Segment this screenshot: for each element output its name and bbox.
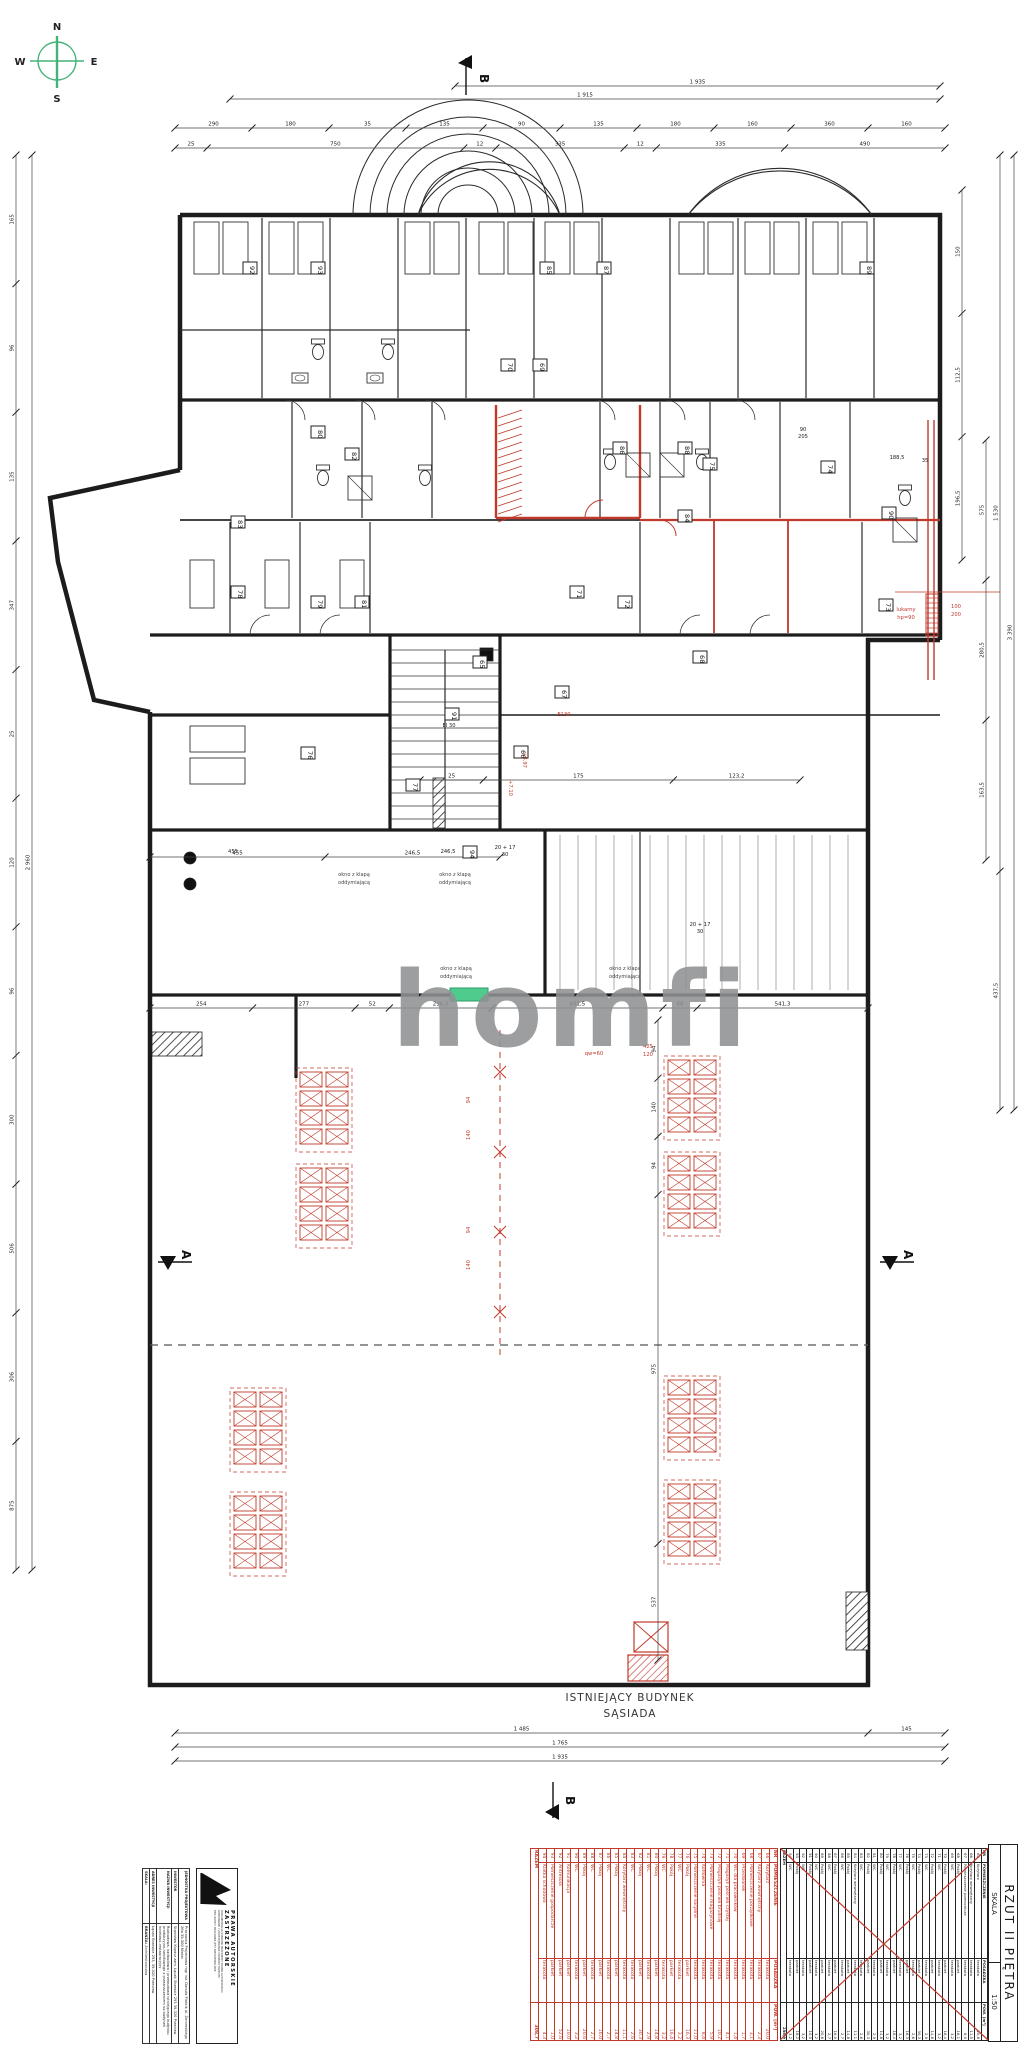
plan-text: 1 765 — [552, 1741, 568, 1747]
toilet-icon — [318, 471, 329, 486]
plan-text: 145 — [901, 1727, 912, 1733]
neighbor-line2: SĄSIADA — [500, 1708, 760, 1720]
sink-icon — [370, 375, 380, 381]
table-row: 88WCterakota2,7 — [587, 1849, 595, 2041]
table-row: 79WCterakota3,2 — [658, 1849, 666, 2041]
red-crossed-box — [326, 1225, 348, 1240]
red-crossed-box — [668, 1213, 690, 1228]
bed-symbol — [679, 222, 704, 274]
plan-text: 35 — [364, 122, 371, 128]
plan-text: 81 — [360, 600, 368, 608]
plan-text: 335 — [715, 142, 726, 148]
plan-text: lukarny — [896, 607, 915, 613]
plan-text: 196,5 — [956, 490, 962, 506]
plan-text: oddymiającą — [439, 880, 471, 886]
plan-text: 87 — [602, 266, 610, 274]
plan-text: 506 — [10, 1243, 16, 1254]
table-row: 85Pokójparkiet14,8 — [610, 1849, 618, 2041]
red-crossed-box — [260, 1392, 282, 1407]
table-row: 70Pokójparkiet16,4 — [942, 1849, 948, 2041]
plan-text: 120 — [10, 857, 16, 868]
plan-text: 300 — [10, 1114, 16, 1125]
table-row: 68Pokójparkiet16,1 — [955, 1849, 961, 2041]
branza-value: Architektoniczna — [144, 1945, 148, 1975]
svg-text:A: A — [179, 1250, 193, 1260]
studio-logo — [199, 1871, 235, 1907]
plan-text: 83 — [236, 520, 244, 528]
toilet-icon — [900, 491, 911, 506]
plan-text: 30 — [502, 852, 509, 858]
plan-text: 94 — [652, 1161, 658, 1168]
plan-text: 165 — [10, 214, 16, 225]
red-crossed-box — [694, 1194, 716, 1209]
plan-text: 160 — [901, 122, 912, 128]
red-hatch — [498, 474, 522, 482]
title-block-row: ADRES INWESTYCJIŁączki Brzeskie 293, 39-… — [150, 1869, 157, 2044]
bed-symbol — [508, 222, 533, 274]
toilet-tank — [382, 339, 395, 344]
toilet-tank — [899, 485, 912, 490]
plan-text: 140 — [466, 1260, 472, 1270]
plan-text: 52 — [369, 1002, 376, 1008]
red-hatch — [498, 482, 522, 490]
table-row: 92WCterakota3,2 — [800, 1849, 806, 2041]
plan-text: 76 — [306, 751, 314, 759]
red-crossed-box — [668, 1194, 690, 1209]
red-crossed-box — [668, 1503, 690, 1518]
fan-arc — [387, 134, 549, 215]
bed-symbol — [194, 222, 219, 274]
plan-text: 140 — [466, 1130, 472, 1140]
door-swing — [320, 615, 340, 635]
red-crossed-box — [234, 1411, 256, 1426]
plan-text: 188,5 — [890, 455, 905, 461]
homfi-logo: homfi — [392, 958, 752, 1062]
plan-text: 123,2 — [729, 774, 745, 780]
drawing-title-block: RZUT II PIĘTRA SKALA 1:50 — [988, 1844, 1018, 2042]
table-row: 72Magazyn pościeli brudnejterakota10,2 — [714, 1849, 722, 2041]
red-crossed-box — [694, 1503, 716, 1518]
plan-text: 135 — [10, 471, 16, 482]
plan-text: 73 — [884, 603, 892, 611]
copyright-strip: PRAWA AUTORSKIE ZASTRZEŻONE DOKUMENTACJA… — [196, 1868, 238, 2044]
plan-text: 88 — [683, 446, 691, 454]
red-crossed-box — [694, 1380, 716, 1395]
red-crossed-box — [694, 1484, 716, 1499]
bed-symbol — [574, 222, 599, 274]
door-swing — [285, 400, 305, 420]
red-crossed-box — [668, 1484, 690, 1499]
fan-arc — [370, 117, 566, 215]
table-row: 68Pomieszczenie porządkoweterakota3,1 — [746, 1849, 754, 2041]
svg-text:B: B — [477, 74, 491, 83]
door-swing — [735, 400, 755, 420]
table-header-row: NRPOMIESZCZENIEPOSADZKAPOW. [m²] — [770, 1849, 778, 2041]
red-hatch — [498, 442, 522, 450]
door-swing — [665, 400, 685, 420]
plan-text: 77 — [411, 783, 419, 791]
title-block-row: INWESTORStanisław Kopacz zam. Łączki Brz… — [172, 1869, 179, 2044]
table-total-row: RAZEM258,9 — [781, 1849, 787, 2041]
table-row: 80Pokójparkiet14,8 — [878, 1849, 884, 2041]
red-crossed-box — [694, 1156, 716, 1171]
table-row: 83WCterakota2,6 — [626, 1849, 634, 2041]
plan-text: 750 — [330, 142, 341, 148]
shower-icon — [893, 518, 917, 542]
red-crossed-box — [234, 1449, 256, 1464]
door-swing — [250, 615, 270, 635]
door-swing — [595, 400, 615, 420]
plan-text: 93 — [316, 266, 324, 274]
red-crossed-box — [694, 1522, 716, 1537]
bed-symbol — [265, 560, 289, 608]
red-hatch — [498, 498, 522, 506]
table-row: 74Pokójparkiet30,3 — [916, 1849, 922, 2041]
table-row: 74Kotłowniaterakota8,4 — [698, 1849, 706, 2041]
plan-text: 1 915 — [577, 93, 593, 99]
plan-text: 180 — [670, 122, 681, 128]
plan-text: 90 — [887, 511, 895, 519]
table-row: 93Pomieszczenie gospodarczeparkiet1,0 — [547, 1849, 555, 2041]
toilet-icon — [313, 345, 324, 360]
plan-text: 75 — [708, 462, 716, 470]
plan-text: 160 — [747, 122, 758, 128]
copyright-title: PRAWA AUTORSKIE ZASTRZEŻONE — [223, 1910, 235, 2041]
section-marker-b-bottom: B — [545, 1782, 577, 1820]
plan-text: 1 485 — [514, 1727, 530, 1733]
plan-text: 150 — [956, 246, 962, 257]
red-hatch — [498, 458, 522, 466]
room-schedule-old: NRPOMIESZCZENIEPOSADZKAPOW. [m²]65Koryta… — [780, 1848, 988, 2040]
plan-text: 78 — [236, 590, 244, 598]
toilet-tank — [696, 449, 709, 454]
table-row: 67Pomieszczenie pomocniczeterakota6,0 — [962, 1849, 968, 2041]
table-row: 66Korytarz wewnętrznyterakota11,5 — [968, 1849, 974, 2041]
plan-text: 875 — [10, 1500, 16, 1511]
red-crossed-box — [260, 1411, 282, 1426]
red-crossed-box — [260, 1449, 282, 1464]
red-crossed-box — [260, 1430, 282, 1445]
red-crossed-box — [234, 1534, 256, 1549]
bed-symbol — [813, 222, 838, 274]
table-row: 93Pokójparkiet18,2 — [793, 1849, 799, 2041]
plan-text: 85 — [545, 266, 553, 274]
table-row: 76Pokójparkiet16,3 — [682, 1849, 690, 2041]
title-block-row: JEDNOSTKA PROJEKTOWAPracownia Projektowa… — [179, 1869, 190, 2044]
room-schedule-old-table: NRPOMIESZCZENIEPOSADZKAPOW. [m²]65Koryta… — [780, 1848, 988, 2041]
table-row: 94Klatka schodowaterakota4,3 — [539, 1849, 547, 2041]
red-crossed-box — [234, 1392, 256, 1407]
table-row: 69Przedsionekterakota1,7 — [738, 1849, 746, 2041]
plan-text: 65 — [478, 660, 486, 668]
toilet-icon — [383, 345, 394, 360]
door-swing — [750, 615, 770, 635]
red-crossed-box — [326, 1187, 348, 1202]
room-schedule-new-table: NRPOMIESZCZENIEPOSADZKAPOW. [m²]66Koryta… — [530, 1848, 778, 2041]
red-crossed-box — [694, 1399, 716, 1414]
plan-text: 277 — [299, 1002, 310, 1008]
plan-text: 74 — [826, 465, 834, 473]
red-crossed-box — [300, 1129, 322, 1144]
table-row: 82Pokójparkiet30,3 — [865, 1849, 871, 2041]
bed-symbol — [190, 560, 214, 608]
red-crossed-box — [694, 1418, 716, 1433]
plan-text: 1 935 — [552, 1755, 568, 1761]
plan-text: 25 — [188, 142, 195, 148]
red-crossed-box — [260, 1553, 282, 1568]
red-hatch — [498, 426, 522, 434]
title-block: PRAWA AUTORSKIE ZASTRZEŻONE DOKUMENTACJA… — [80, 1868, 238, 2044]
red-crossed-box — [260, 1515, 282, 1530]
neighbor-line1: ISTNIEJĄCY BUDYNEK — [500, 1692, 760, 1704]
plan-text: 86 — [618, 446, 626, 454]
red-crossed-box — [234, 1430, 256, 1445]
red-crossed-box — [300, 1072, 322, 1087]
plan-text: 537 — [652, 1596, 658, 1607]
table-row: 79WCterakota3,2 — [884, 1849, 890, 2041]
drawing-title: RZUT II PIĘTRA — [1000, 1845, 1017, 2041]
plan-text: 94 — [466, 1096, 472, 1103]
plan-text: 35 — [922, 458, 929, 464]
table-row: 86WCterakota2,7 — [603, 1849, 611, 2041]
red-x-mark — [494, 1226, 506, 1238]
door-swing — [355, 400, 375, 420]
table-row: 75WCterakota2,6 — [910, 1849, 916, 2041]
plan-text: 135 — [593, 122, 604, 128]
red-crossed-box — [300, 1168, 322, 1183]
table-row: 71Magazyn pościeli czystejterakota4,1 — [722, 1849, 730, 2041]
toilet-tank — [419, 465, 432, 470]
table-row: 78Pokójparkiet16,4 — [890, 1849, 896, 2041]
table-row: 78Pokójparkiet16,4 — [666, 1849, 674, 2041]
red-crossed-box — [300, 1225, 322, 1240]
plan-text: okno z klapą — [439, 872, 471, 878]
plan-text: 30 — [697, 929, 704, 935]
generated-fixtures — [190, 222, 917, 990]
plan-text: 541,3 — [775, 1002, 791, 1008]
red-crossed-box — [300, 1091, 322, 1106]
plan-text: 79 — [316, 600, 324, 608]
red-crossed-box — [668, 1437, 690, 1452]
piers — [152, 648, 868, 1650]
red-crossed-box — [326, 1091, 348, 1106]
plan-text: 975 — [652, 1363, 658, 1374]
plan-text: 575 — [980, 504, 986, 515]
plan-text: 72 — [623, 600, 631, 608]
red-crossed-box — [326, 1072, 348, 1087]
red-crossed-box — [694, 1541, 716, 1556]
red-crossed-box — [668, 1079, 690, 1094]
toilet-icon — [605, 455, 616, 470]
title-block-row: SKALA: BRANŻA: Architektoniczna — [143, 1869, 150, 2044]
table-row: 90WCterakota3,2 — [813, 1849, 819, 2041]
table-row: 67Korytarz wewnętrznyterakota2,3 — [754, 1849, 762, 2041]
table-row: 85Pokójparkiet14,8 — [845, 1849, 851, 2041]
plan-text: 455 — [228, 849, 238, 855]
plan-text: 70 — [506, 363, 514, 371]
red-hatch — [498, 490, 522, 498]
table-row: 81WCterakota2,9 — [871, 1849, 877, 2041]
door-swing — [680, 615, 700, 635]
sink-icon — [292, 373, 308, 383]
table-header-row: NRPOMIESZCZENIEPOSADZKAPOW. [m²] — [981, 1849, 987, 2041]
red-crossed-box — [668, 1522, 690, 1537]
plan-text: 90 — [800, 427, 807, 433]
red-crossed-box — [694, 1117, 716, 1132]
red-hatch — [498, 450, 522, 458]
plan-text: 25 — [448, 774, 455, 780]
plan-text: 360 — [824, 122, 835, 128]
red-crossed-box — [326, 1206, 348, 1221]
red-crossed-box — [694, 1213, 716, 1228]
shower-icon — [660, 453, 684, 477]
section-marker-a-left: A — [158, 1250, 193, 1270]
red-hatch — [498, 410, 522, 418]
plan-text: 140 — [652, 1102, 658, 1113]
plan-text: 1 530 — [994, 505, 1000, 521]
red-crossed-box — [694, 1098, 716, 1113]
plan-text: 84 — [683, 514, 691, 522]
door-swing — [425, 400, 445, 420]
table-row: 86WCterakota2,7 — [839, 1849, 845, 2041]
table-row: 73WCterakota2,9 — [923, 1849, 929, 2041]
drawing-scale-label: SKALA — [989, 1845, 1000, 1963]
table-row: 88WCterakota2,7 — [826, 1849, 832, 2041]
project-info-table: JEDNOSTKA PROJEKTOWAPracownia Projektowa… — [142, 1868, 190, 2044]
red-crossed-box — [668, 1156, 690, 1171]
plan-text: 437,5 — [994, 982, 1000, 998]
red-crossed-box — [300, 1110, 322, 1125]
plan-text: 96 — [10, 344, 16, 351]
plan-text: 490 — [860, 142, 871, 148]
branza-label: BRANŻA: — [144, 1926, 148, 1944]
table-row: 87Pokójparkiet16,0 — [832, 1849, 838, 2041]
svg-text:B: B — [563, 1796, 577, 1805]
table-row: 82Pokójparkiet30,3 — [634, 1849, 642, 2041]
plan-text: 100 — [951, 604, 961, 610]
plan-text: 68 — [698, 655, 706, 663]
red-hatch — [498, 466, 522, 474]
plan-text: 135 — [439, 122, 450, 128]
table-row: 75Pomieszczenie socjalneterakota11,0 — [690, 1849, 698, 2041]
table-row: 77WCterakota3,2 — [674, 1849, 682, 2041]
table-row: 83WCterakota2,6 — [858, 1849, 864, 2041]
table-row: 94WCterakota3,2 — [787, 1849, 793, 2041]
section-marker-b-top: B — [458, 55, 491, 95]
red-hatch — [498, 418, 522, 426]
table-row: 90WCterakota3,2 — [571, 1849, 579, 2041]
table-row: 92Antresolaparkiet52,6 — [555, 1849, 563, 2041]
red-crossed-box — [300, 1206, 322, 1221]
room-schedule-new: NRPOMIESZCZENIEPOSADZKAPOW. [m²]66Koryta… — [530, 1848, 778, 2040]
plan-text: 163,5 — [980, 782, 986, 798]
toilet-icon — [420, 471, 431, 486]
plan-text: okno z klapą — [338, 872, 370, 878]
floor-plan-drawing: 1 9351 915290180351359013518016036016025… — [0, 0, 1024, 1840]
red-crossed-box — [668, 1418, 690, 1433]
plan-text: 347 — [10, 599, 16, 610]
red-crossed-box — [694, 1079, 716, 1094]
plan-text: 80 — [316, 430, 324, 438]
floor-plan-page: N S W E — [0, 0, 1024, 2048]
red-crossed-box — [668, 1541, 690, 1556]
plan-text: E130 — [557, 712, 570, 718]
plan-text: 335 — [555, 142, 566, 148]
bed-symbol — [434, 222, 459, 274]
table-row: 84Korytarz wewnętrznyterakota11,1 — [618, 1849, 626, 2041]
plan-text: 280,5 — [980, 642, 986, 658]
table-row: 72Pokójparkiet14,8 — [929, 1849, 935, 2041]
red-crossed-box — [234, 1553, 256, 1568]
fan-arc — [438, 185, 498, 215]
shower-icon — [348, 476, 372, 500]
plan-text: 205 — [798, 434, 808, 440]
table-row: 87Pokójparkiet16,0 — [595, 1849, 603, 2041]
plan-text: 200 — [951, 612, 961, 618]
plan-text: 92 — [248, 266, 256, 274]
red-crossed-box — [260, 1534, 282, 1549]
table-row: 73Pomieszczenie magazynoweterakota5,9 — [706, 1849, 714, 2041]
red-crossed-box — [668, 1098, 690, 1113]
plan-text: 25 — [10, 730, 16, 737]
plan-text: 180 — [285, 122, 296, 128]
arch-arc — [688, 168, 872, 215]
plan-text: EI 30 — [442, 723, 455, 729]
table-row: 76Pokójparkiet16,3 — [903, 1849, 909, 2041]
red-crossed-box — [694, 1437, 716, 1452]
plan-text: 20 + 17 — [690, 922, 711, 928]
plan-text: 246,5 — [441, 849, 456, 855]
plan-text: oddymiającą — [338, 880, 370, 886]
plan-text: 94 — [466, 1226, 472, 1233]
plan-text: 94 — [468, 850, 476, 858]
bed-symbol — [269, 222, 294, 274]
bed-symbol — [745, 222, 770, 274]
red-crossed-box — [234, 1515, 256, 1530]
table-row: 65Korytarzterakota20,8 — [975, 1849, 981, 2041]
plan-text: 290 — [208, 122, 219, 128]
plan-text: 90 — [518, 122, 525, 128]
table-row: 91Komunikacjaparkiet10,0 — [563, 1849, 571, 2041]
arch-arc — [688, 171, 872, 215]
room-number-boxes: 6566676869707172737475767778798081828384… — [231, 262, 896, 858]
plan-text: 71 — [575, 590, 583, 598]
neighbor-building-label: ISTNIEJĄCY BUDYNEK SĄSIADA — [500, 1692, 760, 1724]
scale-label: SKALA: — [144, 1871, 148, 1885]
plan-text: 67 — [560, 690, 568, 698]
red-crossed-box — [260, 1496, 282, 1511]
red-crossed-box — [300, 1187, 322, 1202]
table-row: 69WCterakota3,2 — [949, 1849, 955, 2041]
red-crossed-box — [668, 1399, 690, 1414]
table-row: 71WCterakota3,2 — [936, 1849, 942, 2041]
plan-text: 1 935 — [690, 80, 706, 86]
plan-text: 96 — [10, 987, 16, 994]
plan-text: 306 — [10, 1371, 16, 1382]
plan-text: 3 390 — [1008, 624, 1014, 640]
toilet-tank — [312, 339, 325, 344]
bed-symbol — [190, 726, 245, 752]
red-crossed-box — [668, 1380, 690, 1395]
plan-text: 12 — [476, 142, 483, 148]
table-row: 80Pokójparkiet14,8 — [650, 1849, 658, 2041]
red-crossed-box — [694, 1175, 716, 1190]
table-total-row: RAZEM308,7 — [531, 1849, 539, 2041]
drawing-scale-value: 1:50 — [989, 1963, 1000, 2041]
table-row: 91Pokójparkiet10,0 — [806, 1849, 812, 2041]
plan-text: 2 960 — [26, 854, 32, 870]
section-marker-a-right: A — [880, 1250, 915, 1270]
